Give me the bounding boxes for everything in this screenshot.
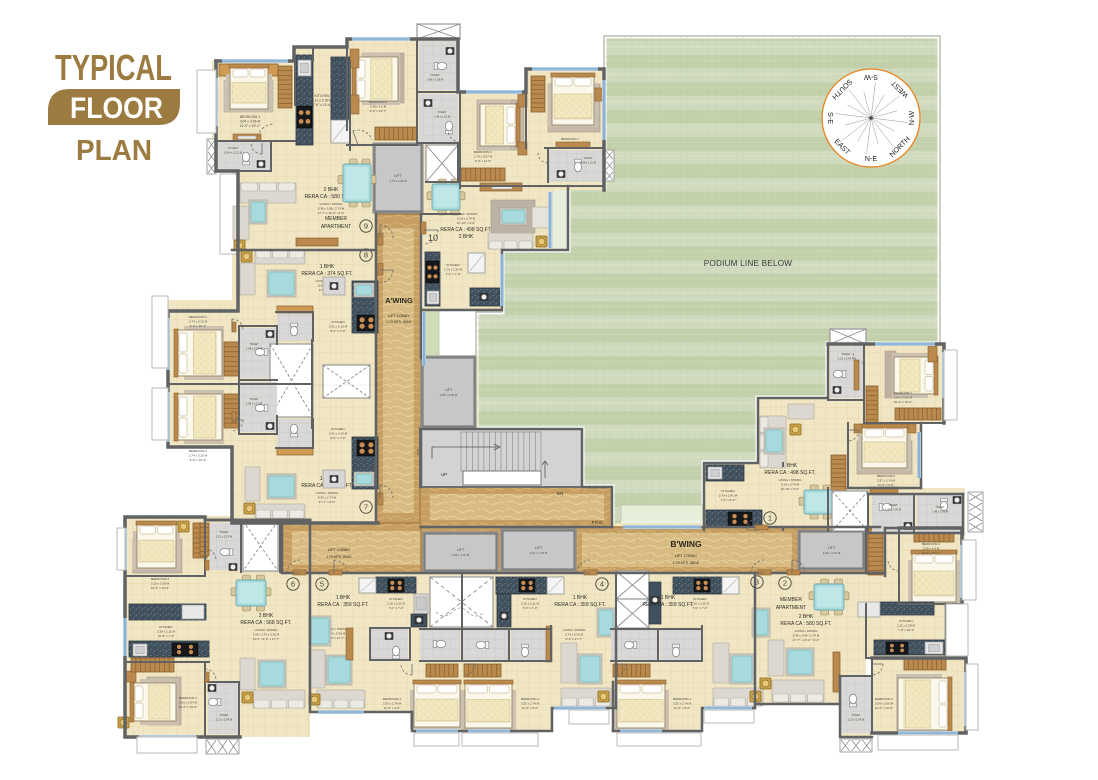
svg-text:TOILET: TOILET — [888, 503, 898, 507]
svg-text:LIVING / DINING: LIVING / DINING — [320, 202, 344, 206]
svg-text:5.36 x 3.94 / 2.74 M: 5.36 x 3.94 / 2.74 M — [793, 633, 820, 637]
svg-text:LIFT LOBBY: LIFT LOBBY — [328, 547, 351, 552]
svg-text:11'-0" x 9'-0": 11'-0" x 9'-0" — [384, 706, 401, 710]
svg-text:KITCHEN: KITCHEN — [693, 597, 706, 601]
svg-text:LIVING / DINING: LIVING / DINING — [795, 629, 819, 633]
svg-text:8'-0" x 7'-0": 8'-0" x 7'-0" — [330, 329, 345, 333]
svg-text:1.95 x 2.65 M: 1.95 x 2.65 M — [440, 393, 458, 397]
svg-text:1.21 x 2.04 M: 1.21 x 2.04 M — [216, 717, 233, 721]
svg-text:KITCHEN: KITCHEN — [331, 320, 344, 324]
svg-text:KITCHEN: KITCHEN — [721, 489, 734, 493]
svg-text:3.05 x 1.70 M: 3.05 x 1.70 M — [452, 553, 470, 557]
svg-text:8'-0" x 7'-0": 8'-0" x 7'-0" — [330, 436, 345, 440]
svg-text:7'-0" x 10'-9": 7'-0" x 10'-9" — [898, 628, 915, 632]
svg-text:17'-7" x 9'-0": 17'-7" x 9'-0" — [319, 500, 336, 504]
svg-text:LIFT LOBBY: LIFT LOBBY — [388, 314, 410, 318]
svg-text:3.04 x 3.06 M: 3.04 x 3.06 M — [240, 119, 261, 123]
svg-text:2.74 x 5.36 M: 2.74 x 5.36 M — [565, 632, 584, 636]
svg-text:1.38 x 2.13 M: 1.38 x 2.13 M — [246, 346, 263, 350]
svg-text:9'-2" x 13'-1": 9'-2" x 13'-1" — [923, 551, 940, 555]
svg-text:BEDROOM 2: BEDROOM 2 — [151, 577, 169, 581]
svg-text:LIFT: LIFT — [445, 388, 453, 392]
svg-text:10: 10 — [428, 233, 438, 243]
svg-text:FLOOR: FLOOR — [70, 92, 163, 125]
svg-text:2.74 x 3.10 M: 2.74 x 3.10 M — [189, 319, 208, 323]
svg-text:BEDROOM 1: BEDROOM 1 — [383, 697, 401, 701]
svg-text:1.21 x 2.04 M: 1.21 x 2.04 M — [848, 717, 865, 721]
svg-text:KITCHEN: KITCHEN — [899, 619, 912, 623]
svg-text:3.57 x 2.74 M: 3.57 x 2.74 M — [877, 478, 896, 482]
svg-text:3.94 / 2.74 x 5.36 M: 3.94 / 2.74 x 5.36 M — [253, 632, 280, 636]
svg-text:1 BHK: 1 BHK — [320, 264, 335, 270]
svg-text:BEDROOM 1: BEDROOM 1 — [673, 697, 691, 701]
svg-text:F.R.D: F.R.D — [592, 520, 602, 525]
svg-text:7'-0" x 7'-0": 7'-0" x 7'-0" — [522, 606, 537, 610]
svg-text:BEDROOM 1: BEDROOM 1 — [894, 391, 912, 395]
svg-text:1.43 x 1.93 M: 1.43 x 1.93 M — [885, 507, 902, 511]
svg-text:RERA CA : 374 SQ.FT.: RERA CA : 374 SQ.FT. — [301, 271, 352, 277]
svg-text:KITCHEN: KITCHEN — [159, 625, 172, 629]
svg-text:3.04 x 3.06 M: 3.04 x 3.06 M — [894, 395, 913, 399]
svg-text:LIFT: LIFT — [535, 546, 543, 550]
svg-text:5.14 x 2.74 M: 5.14 x 2.74 M — [457, 216, 476, 220]
svg-text:KITCHEN: KITCHEN — [315, 94, 330, 98]
svg-text:2.41 x 2.10 M: 2.41 x 2.10 M — [329, 431, 348, 435]
svg-text:7'-0" x 7'-0": 7'-0" x 7'-0" — [445, 272, 460, 276]
svg-text:A'WING: A'WING — [385, 296, 413, 305]
svg-text:LIFT: LIFT — [457, 548, 465, 552]
svg-text:UP: UP — [441, 472, 447, 477]
svg-text:BEDROOM 2: BEDROOM 2 — [474, 150, 492, 154]
svg-text:2.10 x 2.11 M: 2.10 x 2.11 M — [691, 601, 709, 605]
svg-text:2.41 x 2.10 M: 2.41 x 2.10 M — [329, 324, 348, 328]
svg-text:BEDROOM 1: BEDROOM 1 — [240, 115, 260, 119]
svg-text:B'WING: B'WING — [670, 539, 702, 549]
svg-text:2.04 x 1.70 M: 2.04 x 1.70 M — [823, 551, 841, 555]
svg-text:11'-0" x 9'-0": 11'-0" x 9'-0" — [674, 706, 691, 710]
svg-text:10'-0" x 10'-0": 10'-0" x 10'-0" — [240, 124, 262, 128]
svg-text:1.79 MTS. WIDE: 1.79 MTS. WIDE — [673, 561, 700, 565]
svg-text:TOILET: TOILET — [219, 530, 229, 534]
svg-text:MEMBER: MEMBER — [780, 597, 802, 603]
svg-text:BEDROOM 1: BEDROOM 1 — [561, 137, 579, 141]
svg-text:TOILET: TOILET — [219, 713, 229, 717]
svg-text:17'-7" x 13'-0" / 9'-0": 17'-7" x 13'-0" / 9'-0" — [793, 638, 820, 642]
svg-text:TOILET: TOILET — [583, 156, 592, 160]
svg-text:RERA CA : 359 SQ.FT.: RERA CA : 359 SQ.FT. — [317, 602, 368, 608]
svg-text:2.04 x 1.21 M: 2.04 x 1.21 M — [224, 150, 243, 154]
svg-text:TOILET: TOILET — [935, 505, 945, 509]
svg-text:7'-0" x 7'-0": 7'-0" x 7'-0" — [388, 606, 403, 610]
svg-text:6: 6 — [291, 580, 295, 589]
svg-text:S-E: S-E — [826, 112, 835, 124]
svg-text:RERA CA : 359 SQ.FT.: RERA CA : 359 SQ.FT. — [554, 602, 605, 608]
svg-text:2 BHK: 2 BHK — [324, 187, 340, 193]
svg-text:5.14 x 2.74 M: 5.14 x 2.74 M — [781, 482, 800, 486]
svg-text:10'-0" x 10'-0": 10'-0" x 10'-0" — [894, 400, 912, 404]
svg-text:11'-9" x 9'-0": 11'-9" x 9'-0" — [878, 483, 895, 487]
svg-text:TOILET: TOILET — [841, 352, 851, 356]
svg-text:N-W: N-W — [907, 111, 916, 126]
svg-text:3.11 x 3.26 M: 3.11 x 3.26 M — [312, 98, 332, 102]
svg-text:LIVING / DINING: LIVING / DINING — [255, 628, 279, 632]
svg-text:2.04 x 1.21 M: 2.04 x 1.21 M — [580, 160, 596, 164]
svg-text:RERA CA : 580 SQ.FT.: RERA CA : 580 SQ.FT. — [780, 621, 831, 627]
svg-text:7'-6" x 10'-6": 7'-6" x 10'-6" — [313, 103, 333, 107]
svg-text:3.35 x 2.74 M: 3.35 x 2.74 M — [521, 701, 540, 705]
svg-text:17'-7" x 13'-0" / 9'-0": 17'-7" x 13'-0" / 9'-0" — [318, 211, 345, 215]
svg-text:1.75 x 2.34 M: 1.75 x 2.34 M — [389, 179, 407, 183]
svg-text:10'-4" x 10'-9": 10'-4" x 10'-9" — [151, 586, 169, 590]
svg-text:BEDROOM 2: BEDROOM 2 — [922, 542, 940, 546]
svg-text:16'-10" x 9'-0": 16'-10" x 9'-0" — [781, 487, 799, 491]
svg-text:2 BHK: 2 BHK — [259, 613, 274, 619]
svg-text:5.36 x 2.74 M: 5.36 x 2.74 M — [318, 495, 337, 499]
svg-text:9'-2" x 13'-7": 9'-2" x 13'-7" — [370, 109, 387, 113]
svg-text:3.04 x 3.04 M: 3.04 x 3.04 M — [179, 700, 198, 704]
svg-text:13'-0" / 9'-0" x 17'-7": 13'-0" / 9'-0" x 17'-7" — [253, 637, 280, 641]
svg-text:BEDROOM 2: BEDROOM 2 — [369, 100, 387, 104]
svg-text:RERA CA : 568 SQ.FT.: RERA CA : 568 SQ.FT. — [240, 620, 291, 626]
svg-text:DN: DN — [557, 491, 564, 496]
svg-text:7'-0" x 7'-0": 7'-0" x 7'-0" — [692, 606, 707, 610]
svg-text:5: 5 — [320, 580, 324, 589]
svg-text:1.75 MTS. WIDE: 1.75 MTS. WIDE — [326, 555, 352, 559]
svg-text:APARTMENT: APARTMENT — [321, 224, 351, 230]
svg-text:BEDROOM 1: BEDROOM 1 — [179, 696, 197, 700]
svg-text:1.46 x 1.02 M: 1.46 x 1.02 M — [434, 114, 450, 118]
svg-text:LIFT LOBBY: LIFT LOBBY — [675, 553, 698, 558]
svg-text:S-W: S-W — [864, 73, 878, 82]
svg-text:2.11 x 3.28 M: 2.11 x 3.28 M — [897, 623, 915, 627]
svg-text:LIVING / DINING: LIVING / DINING — [316, 491, 340, 495]
svg-text:1.21 x 2.13 M: 1.21 x 2.13 M — [216, 534, 233, 538]
svg-text:1 BHK: 1 BHK — [336, 595, 351, 601]
svg-text:2 BHK: 2 BHK — [459, 234, 474, 240]
svg-text:TYPICAL: TYPICAL — [55, 47, 172, 88]
svg-text:16'-10" x 9'-0": 16'-10" x 9'-0" — [457, 221, 475, 225]
svg-text:BEDROOM 2: BEDROOM 2 — [877, 474, 895, 478]
svg-text:3.35 x 2.74 M: 3.35 x 2.74 M — [673, 701, 692, 705]
svg-text:TOILET: TOILET — [437, 110, 446, 114]
svg-text:TOILET: TOILET — [249, 342, 259, 346]
svg-text:9'-0" x 10'-3": 9'-0" x 10'-3" — [190, 458, 207, 462]
svg-text:RERA CA : 359 SQ.FT.: RERA CA : 359 SQ.FT. — [642, 602, 693, 608]
svg-text:BEDROOM 1: BEDROOM 1 — [189, 449, 207, 453]
svg-text:LIVING / DINING: LIVING / DINING — [563, 628, 587, 632]
svg-text:LIVING / DINING: LIVING / DINING — [779, 478, 803, 482]
svg-text:2.10 x 2.11 M: 2.10 x 2.11 M — [521, 601, 539, 605]
svg-text:LIFT: LIFT — [394, 174, 402, 178]
svg-text:KITCHEN: KITCHEN — [389, 597, 402, 601]
svg-text:1.75 MTS. WIDE: 1.75 MTS. WIDE — [386, 320, 412, 324]
svg-text:1.38 x 2.13 M: 1.38 x 2.13 M — [246, 401, 263, 405]
svg-text:2: 2 — [783, 579, 787, 588]
svg-text:3.04 x 3.06 M: 3.04 x 3.06 M — [875, 701, 894, 705]
svg-text:BEDROOM 1: BEDROOM 1 — [189, 315, 207, 319]
svg-text:1: 1 — [768, 514, 772, 523]
svg-text:3.35 x 2.74 M: 3.35 x 2.74 M — [383, 701, 402, 705]
svg-text:10'-0" x 10'-0": 10'-0" x 10'-0" — [179, 705, 197, 709]
svg-text:TOILET: TOILET — [228, 146, 239, 150]
svg-text:2.90 x 4.0 M: 2.90 x 4.0 M — [923, 546, 940, 550]
svg-text:MEMBER: MEMBER — [325, 216, 347, 222]
svg-text:5.36 x 3.96 / 2.74 M: 5.36 x 3.96 / 2.74 M — [318, 206, 345, 210]
svg-text:TOILET: TOILET — [851, 713, 861, 717]
svg-text:TOILET: TOILET — [430, 73, 440, 77]
svg-text:BEDROOM 1: BEDROOM 1 — [875, 697, 893, 701]
svg-text:3.28 x 2.11 M: 3.28 x 2.11 M — [157, 629, 175, 633]
svg-text:2.90 x 4.0 M: 2.90 x 4.0 M — [370, 104, 387, 108]
svg-text:1 BHK: 1 BHK — [573, 595, 588, 601]
svg-text:2.10 x 2.11 M: 2.10 x 2.11 M — [387, 601, 405, 605]
svg-text:LIFT: LIFT — [828, 546, 836, 550]
svg-text:RERA CA : 498 SQ.FT.: RERA CA : 498 SQ.FT. — [440, 227, 491, 233]
svg-text:10'-9" x 7'-0": 10'-9" x 7'-0" — [158, 634, 175, 638]
svg-text:10'-0" x 10'-0": 10'-0" x 10'-0" — [875, 706, 893, 710]
svg-text:2.74 x 3.57 M: 2.74 x 3.57 M — [474, 154, 493, 158]
svg-text:9'-0" x 10'-3": 9'-0" x 10'-3" — [190, 324, 207, 328]
svg-text:7'-0" x 8'-0": 7'-0" x 8'-0" — [720, 498, 735, 502]
svg-text:3.15 x 3.28 M: 3.15 x 3.28 M — [151, 581, 170, 585]
svg-text:PLAN: PLAN — [76, 135, 152, 167]
svg-text:APARTMENT: APARTMENT — [776, 605, 806, 611]
svg-text:1.48 x 1.95 M: 1.48 x 1.95 M — [427, 77, 445, 81]
svg-text:3.21 x 1.70 M: 3.21 x 1.70 M — [530, 551, 548, 555]
svg-text:9'-0" x 11'-9": 9'-0" x 11'-9" — [475, 159, 492, 163]
svg-text:4: 4 — [600, 580, 604, 589]
svg-text:9'-0" x 17'-7": 9'-0" x 17'-7" — [566, 637, 583, 641]
svg-text:8: 8 — [364, 251, 368, 260]
svg-text:KITCHEN: KITCHEN — [331, 427, 344, 431]
svg-text:2.74 x 3.10 M: 2.74 x 3.10 M — [189, 453, 208, 457]
svg-text:7: 7 — [364, 503, 368, 512]
svg-text:11'-0" x 9'-0": 11'-0" x 9'-0" — [522, 706, 539, 710]
svg-text:1 BHK: 1 BHK — [661, 595, 676, 601]
svg-text:RERA CA : 498 SQ.FT.: RERA CA : 498 SQ.FT. — [764, 470, 815, 476]
svg-text:1.48 x 3.03 M: 1.48 x 3.03 M — [932, 509, 949, 513]
svg-text:PODIUM LINE BELOW: PODIUM LINE BELOW — [704, 259, 793, 268]
svg-text:KITCHEN: KITCHEN — [523, 597, 536, 601]
svg-text:2 BHK: 2 BHK — [799, 614, 814, 620]
svg-text:BEDROOM 1: BEDROOM 1 — [521, 697, 539, 701]
svg-text:KITCHEN: KITCHEN — [446, 263, 459, 267]
svg-text:2.70 x 2.36 M: 2.70 x 2.36 M — [444, 267, 463, 271]
svg-text:2.70 x 2.41 M: 2.70 x 2.41 M — [719, 493, 738, 497]
svg-text:N-E: N-E — [865, 154, 878, 163]
svg-text:TOILET: TOILET — [249, 397, 259, 401]
svg-text:1.21 x 2.04 M: 1.21 x 2.04 M — [838, 356, 855, 360]
svg-text:9: 9 — [364, 222, 368, 231]
